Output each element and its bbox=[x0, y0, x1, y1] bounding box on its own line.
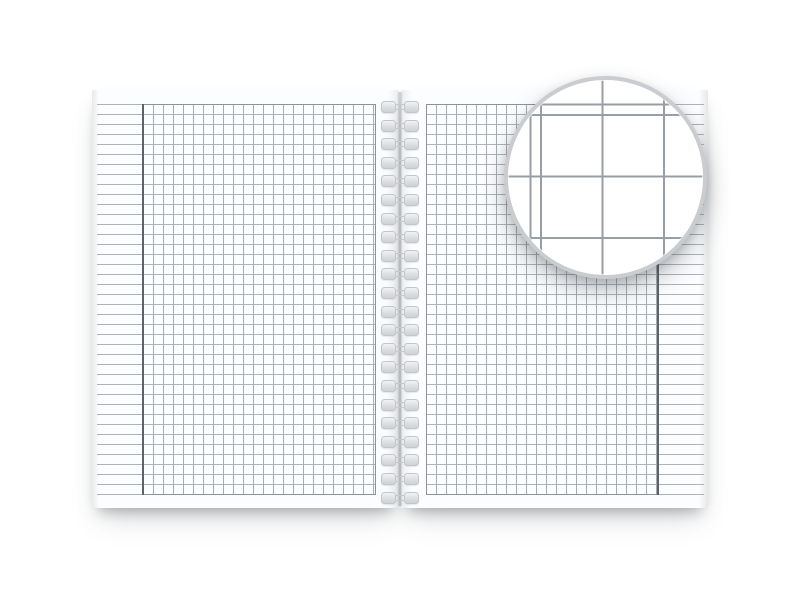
left-page-grid-border bbox=[143, 104, 376, 495]
spiral-wire bbox=[395, 104, 405, 105]
spiral-coil-right bbox=[404, 492, 419, 504]
spiral-coil-right bbox=[404, 454, 419, 466]
spiral-wire bbox=[395, 128, 405, 129]
spiral-wire bbox=[395, 383, 405, 384]
spiral-loop bbox=[379, 157, 421, 170]
spiral-loop bbox=[379, 120, 421, 133]
spiral-binding bbox=[379, 0, 421, 600]
spiral-wire bbox=[395, 253, 405, 254]
spiral-wire bbox=[395, 271, 405, 272]
spiral-loop bbox=[379, 361, 421, 374]
spiral-coil-right bbox=[404, 324, 419, 336]
spiral-wire bbox=[395, 425, 405, 426]
spiral-wire bbox=[395, 109, 405, 110]
spiral-coil-left bbox=[381, 120, 396, 132]
spiral-coil-right bbox=[404, 194, 419, 206]
spiral-coil-right bbox=[404, 231, 419, 243]
spiral-loop bbox=[379, 343, 421, 356]
spiral-coil-left bbox=[381, 343, 396, 355]
spiral-coil-right bbox=[404, 361, 419, 373]
spiral-loop bbox=[379, 417, 421, 430]
spiral-coil-left bbox=[381, 231, 396, 243]
spiral-wire bbox=[395, 197, 405, 198]
spiral-wire bbox=[395, 165, 405, 166]
spiral-coil-right bbox=[404, 268, 419, 280]
spiral-wire bbox=[395, 258, 405, 259]
spiral-coil-left bbox=[381, 324, 396, 336]
spiral-loop bbox=[379, 175, 421, 188]
spiral-loop bbox=[379, 101, 421, 114]
left-page-grid-lines bbox=[143, 104, 375, 495]
spiral-wire bbox=[395, 239, 405, 240]
spiral-coil-right bbox=[404, 380, 419, 392]
spiral-coil-left bbox=[381, 380, 396, 392]
spiral-coil-left bbox=[381, 268, 396, 280]
spiral-wire bbox=[395, 160, 405, 161]
left-page bbox=[92, 90, 399, 508]
spiral-wire bbox=[395, 332, 405, 333]
magnifier-circle bbox=[504, 76, 707, 279]
spiral-wire bbox=[395, 295, 405, 296]
spiral-coil-right bbox=[404, 250, 419, 262]
spiral-loop bbox=[379, 380, 421, 393]
spiral-coil-left bbox=[381, 175, 396, 187]
spiral-coil-right bbox=[404, 157, 419, 169]
spiral-coil-right bbox=[404, 399, 419, 411]
spiral-coil-left bbox=[381, 306, 396, 318]
spiral-coil-right bbox=[404, 287, 419, 299]
spiral-loop bbox=[379, 231, 421, 244]
spiral-coil-left bbox=[381, 138, 396, 150]
backdrop bbox=[0, 0, 800, 600]
spiral-loop bbox=[379, 399, 421, 412]
spiral-coil-left bbox=[381, 492, 396, 504]
magnifier-grid bbox=[508, 80, 703, 275]
spiral-coil-right bbox=[404, 138, 419, 150]
spiral-wire bbox=[395, 444, 405, 445]
spiral-loop bbox=[379, 492, 421, 505]
spiral-coil-right bbox=[404, 343, 419, 355]
spiral-wire bbox=[395, 500, 405, 501]
spiral-wire bbox=[395, 369, 405, 370]
spiral-loop bbox=[379, 454, 421, 467]
spiral-coil-left bbox=[381, 157, 396, 169]
spiral-wire bbox=[395, 407, 405, 408]
spiral-loop bbox=[379, 194, 421, 207]
spiral-coil-left bbox=[381, 250, 396, 262]
spiral-loop bbox=[379, 473, 421, 486]
spiral-wire bbox=[395, 420, 405, 421]
spiral-wire bbox=[395, 364, 405, 365]
spiral-coil-right bbox=[404, 473, 419, 485]
spiral-wire bbox=[395, 141, 405, 142]
left-page-ruled-lines bbox=[97, 104, 375, 495]
spiral-coil-right bbox=[404, 175, 419, 187]
spiral-wire bbox=[395, 402, 405, 403]
spiral-wire bbox=[395, 314, 405, 315]
spiral-wire bbox=[395, 462, 405, 463]
spiral-coil-right bbox=[404, 417, 419, 429]
spiral-wire bbox=[395, 309, 405, 310]
spiral-wire bbox=[395, 346, 405, 347]
spiral-wire bbox=[395, 439, 405, 440]
spiral-coil-left bbox=[381, 194, 396, 206]
spiral-coil-left bbox=[381, 101, 396, 113]
spiral-wire bbox=[395, 146, 405, 147]
spiral-wire bbox=[395, 476, 405, 477]
spiral-coil-left bbox=[381, 417, 396, 429]
spiral-loop bbox=[379, 213, 421, 226]
spiral-wire bbox=[395, 481, 405, 482]
spiral-coil-left bbox=[381, 287, 396, 299]
spiral-wire bbox=[395, 290, 405, 291]
spiral-coil-right bbox=[404, 436, 419, 448]
spiral-loop bbox=[379, 306, 421, 319]
spiral-wire bbox=[395, 183, 405, 184]
spiral-coil-left bbox=[381, 436, 396, 448]
spiral-wire bbox=[395, 221, 405, 222]
spiral-coil-left bbox=[381, 213, 396, 225]
spiral-coil-left bbox=[381, 361, 396, 373]
spiral-wire bbox=[395, 495, 405, 496]
spiral-coil-right bbox=[404, 120, 419, 132]
spiral-loop bbox=[379, 436, 421, 449]
spiral-loop bbox=[379, 138, 421, 151]
spiral-wire bbox=[395, 216, 405, 217]
spiral-wire bbox=[395, 351, 405, 352]
spiral-loop bbox=[379, 268, 421, 281]
spiral-wire bbox=[395, 327, 405, 328]
spiral-coil-right bbox=[404, 306, 419, 318]
spiral-wire bbox=[395, 234, 405, 235]
spiral-wire bbox=[395, 178, 405, 179]
spiral-loop bbox=[379, 287, 421, 300]
spiral-coil-left bbox=[381, 399, 396, 411]
spiral-wire bbox=[395, 276, 405, 277]
spiral-coil-left bbox=[381, 454, 396, 466]
left-page-margin-line bbox=[142, 104, 144, 495]
spiral-coil-right bbox=[404, 101, 419, 113]
spiral-wire bbox=[395, 388, 405, 389]
spiral-loop bbox=[379, 250, 421, 263]
spiral-coil-right bbox=[404, 213, 419, 225]
spiral-wire bbox=[395, 457, 405, 458]
spiral-wire bbox=[395, 202, 405, 203]
spiral-coil-left bbox=[381, 473, 396, 485]
spiral-wire bbox=[395, 123, 405, 124]
spiral-loop bbox=[379, 324, 421, 337]
